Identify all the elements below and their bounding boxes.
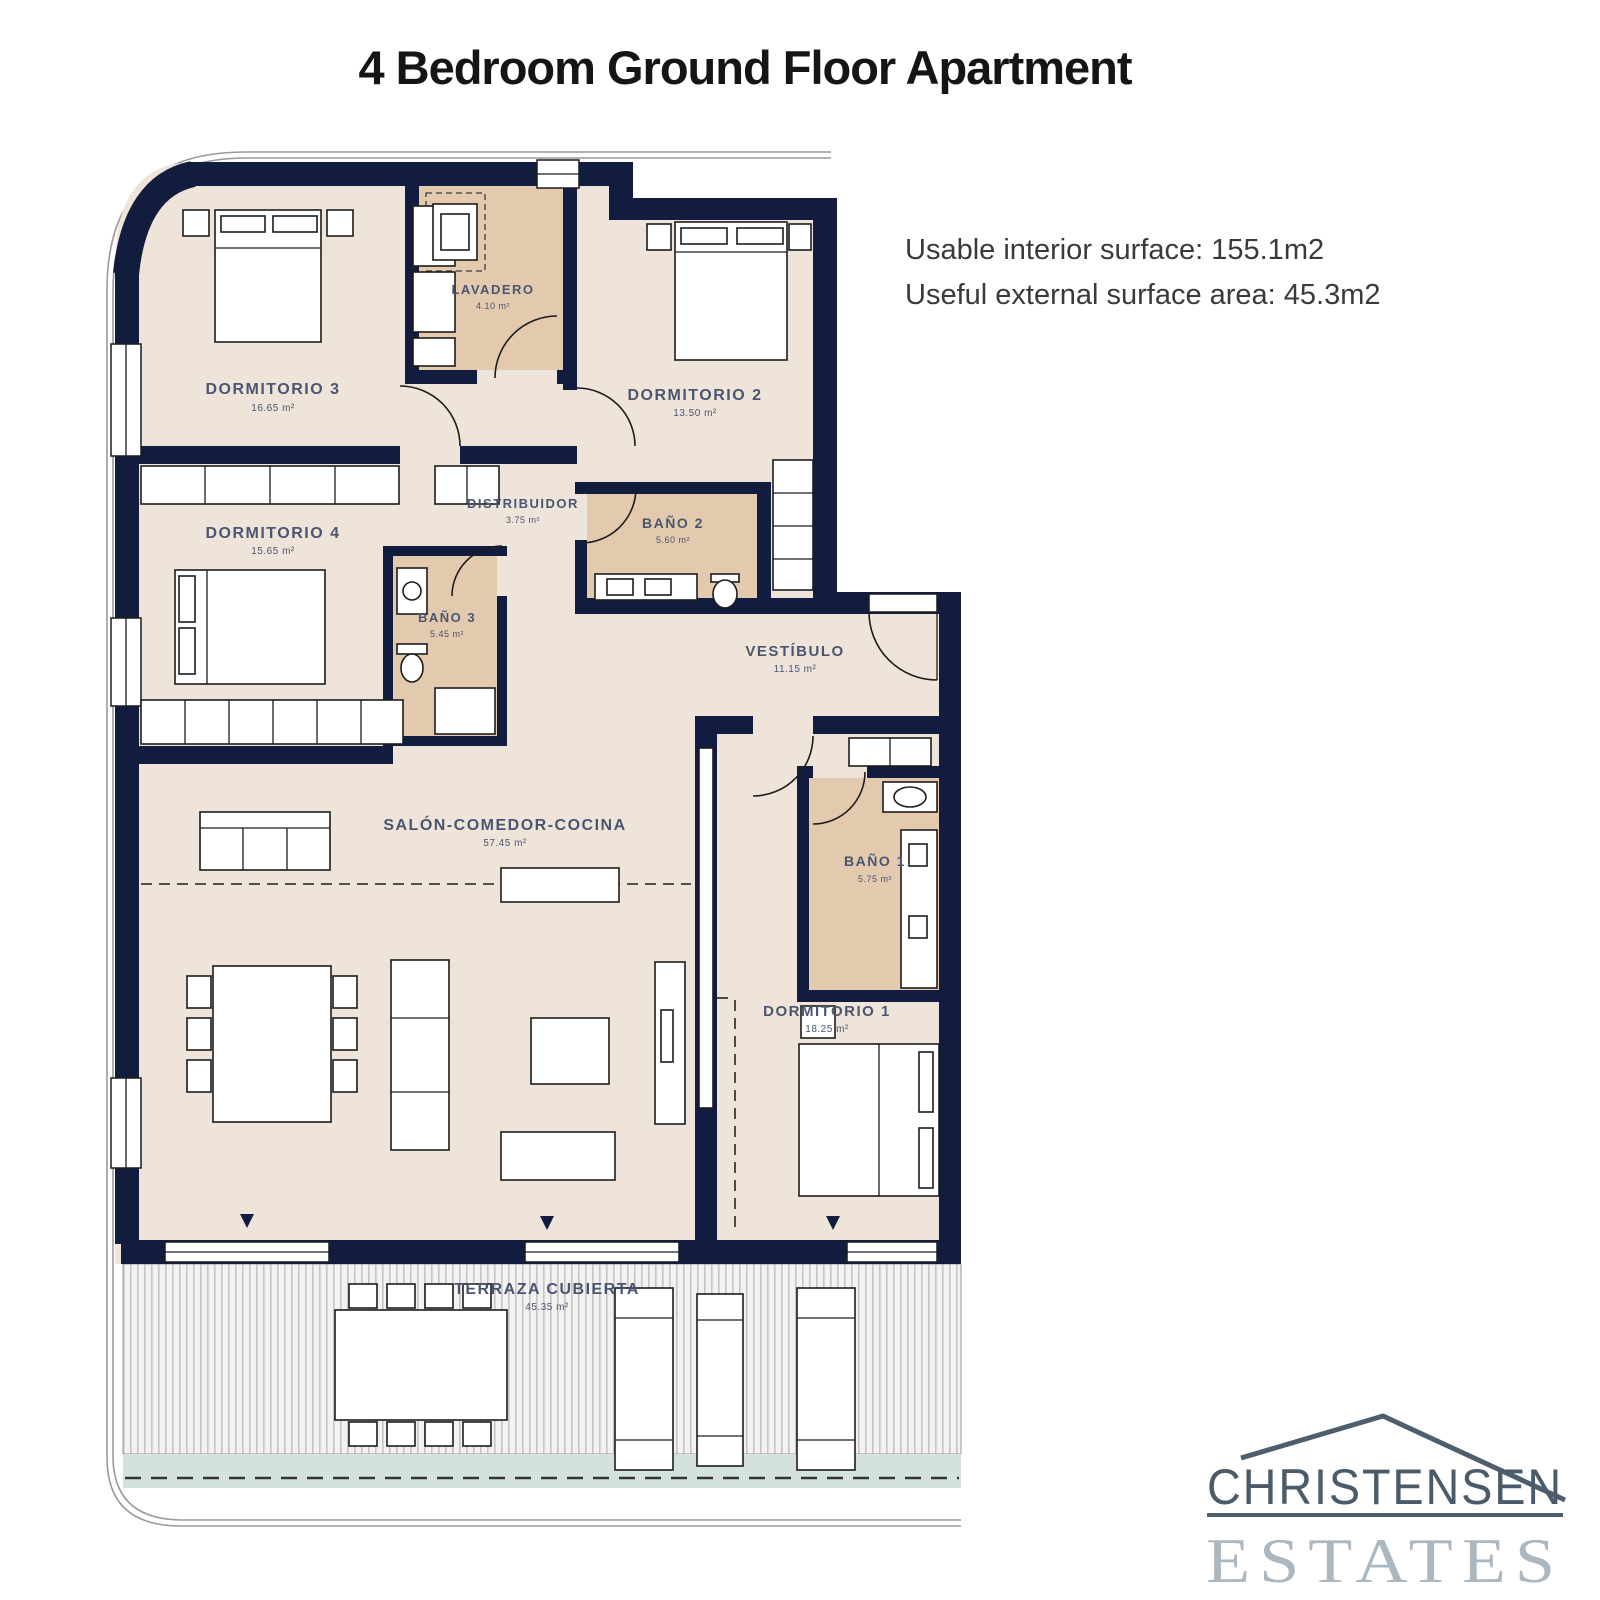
area-salon: 57.45 m² <box>483 838 527 849</box>
surface-info: Usable interior surface: 155.1m2 Useful … <box>905 228 1381 318</box>
label-bano3: BAÑO 3 <box>418 610 476 625</box>
area-bano2: 5.60 m² <box>656 535 690 545</box>
area-bano1: 5.75 m² <box>858 874 892 884</box>
page-title: 4 Bedroom Ground Floor Apartment <box>0 40 1490 95</box>
label-dormitorio4: DORMITORIO 4 <box>205 525 340 542</box>
label-salon: SALÓN-COMEDOR-COCINA <box>383 815 626 834</box>
label-terraza: TERRAZA CUBIERTA <box>454 1281 640 1298</box>
furniture-dormitorio3 <box>183 206 455 366</box>
area-bano3: 5.45 m² <box>430 629 464 639</box>
area-dormitorio2: 13.50 m² <box>673 408 717 419</box>
label-bano2: BAÑO 2 <box>642 514 704 531</box>
floor-plan-drawing: DORMITORIO 3 16.65 m² LAVADERO 4.10 m² D… <box>95 148 975 1548</box>
label-dormitorio2: DORMITORIO 2 <box>627 387 762 404</box>
label-dormitorio1: DORMITORIO 1 <box>763 1003 891 1020</box>
area-distribuidor: 3.75 m² <box>506 515 540 525</box>
brand-logo: CHRISTENSEN ESTATES <box>1185 1392 1575 1600</box>
area-dormitorio1: 18.25 m² <box>805 1024 849 1035</box>
logo-underline <box>1207 1513 1563 1517</box>
label-vestibulo: VESTÍBULO <box>745 643 844 660</box>
floor-plan-page: 4 Bedroom Ground Floor Apartment Usable … <box>0 0 1600 1600</box>
label-bano1: BAÑO 1 <box>844 852 906 869</box>
label-lavadero: LAVADERO <box>451 282 534 297</box>
external-surface-text: Useful external surface area: 45.3m2 <box>905 273 1381 318</box>
area-dormitorio3: 16.65 m² <box>251 403 295 414</box>
label-dormitorio3: DORMITORIO 3 <box>205 381 340 398</box>
area-terraza: 45.35 m² <box>525 1302 569 1313</box>
furniture-lavadero <box>433 204 477 260</box>
interior-surface-text: Usable interior surface: 155.1m2 <box>905 228 1381 273</box>
logo-estates: ESTATES <box>1206 1525 1564 1596</box>
logo-name: CHRISTENSEN <box>1207 1459 1563 1515</box>
label-distribuidor: DISTRIBUIDOR <box>467 496 579 511</box>
area-vestibulo: 11.15 m² <box>774 664 817 675</box>
area-dormitorio4: 15.65 m² <box>251 546 295 557</box>
furniture-vestibulo <box>849 738 931 766</box>
area-lavadero: 4.10 m² <box>476 301 510 311</box>
